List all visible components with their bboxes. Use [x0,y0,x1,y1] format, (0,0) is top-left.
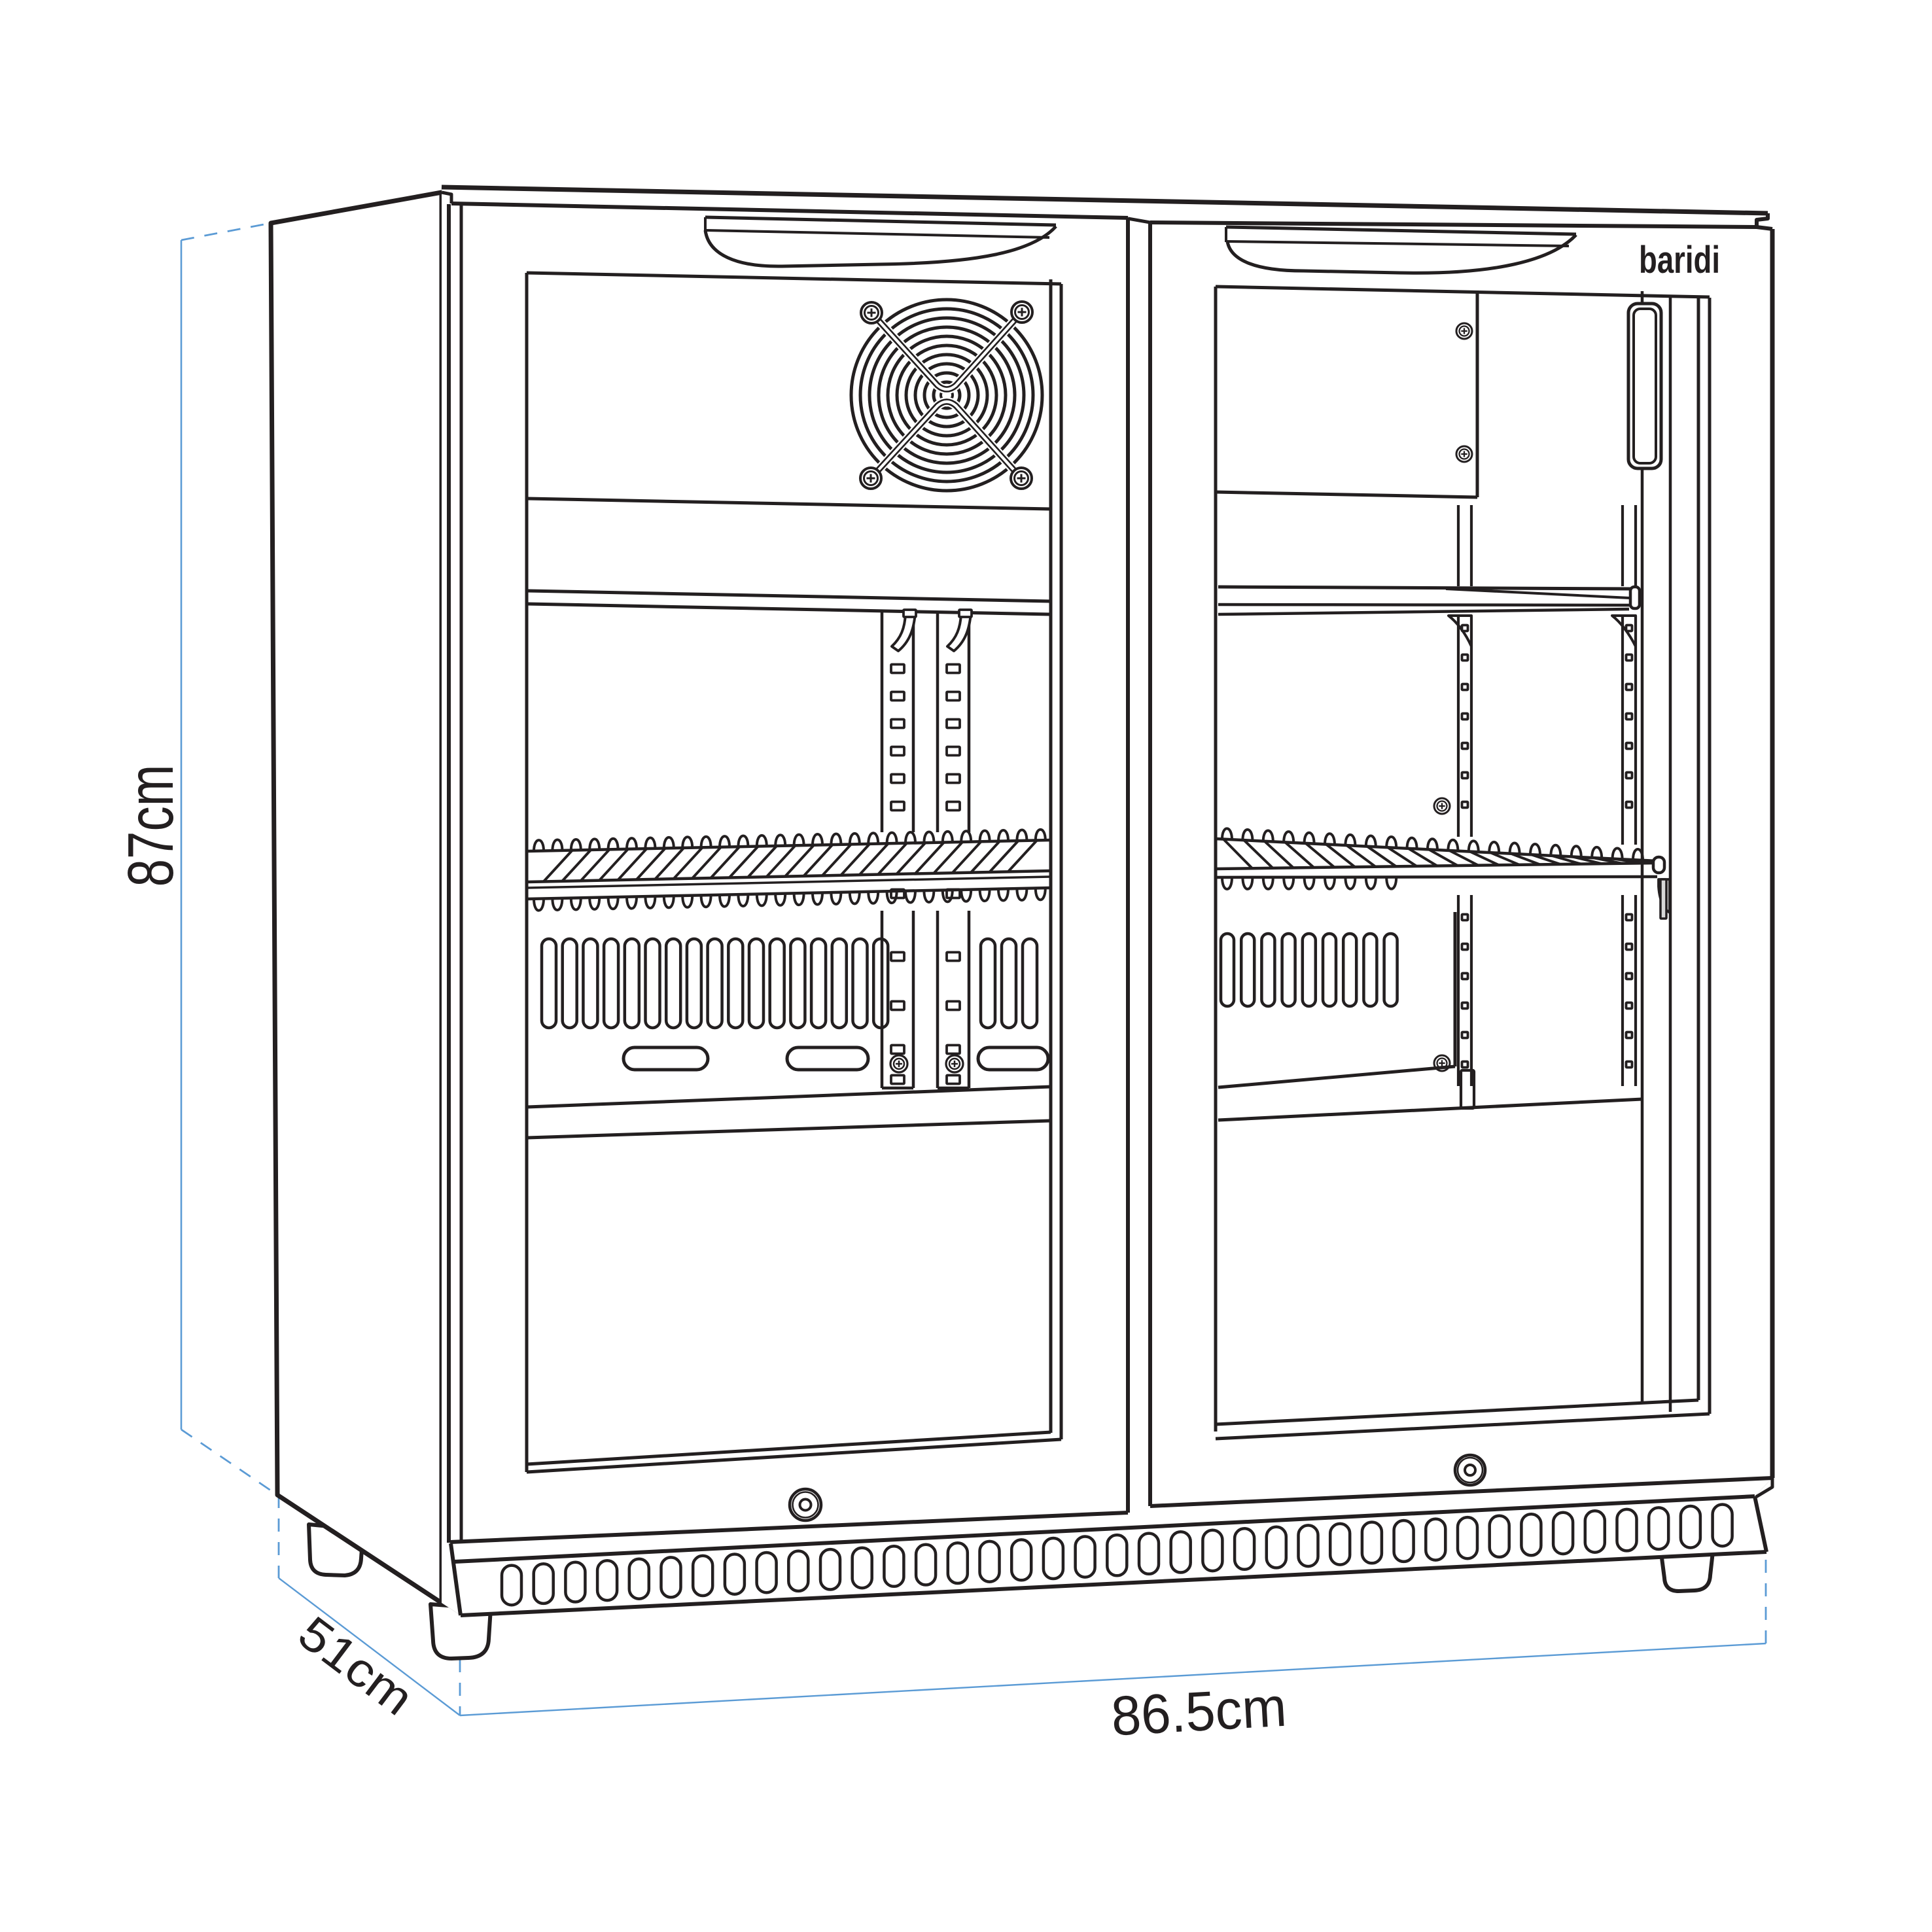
svg-text:87cm: 87cm [114,765,186,887]
svg-text:51cm: 51cm [289,1606,423,1726]
svg-text:86.5cm: 86.5cm [1110,1676,1288,1748]
svg-text:baridi: baridi [1639,239,1720,281]
